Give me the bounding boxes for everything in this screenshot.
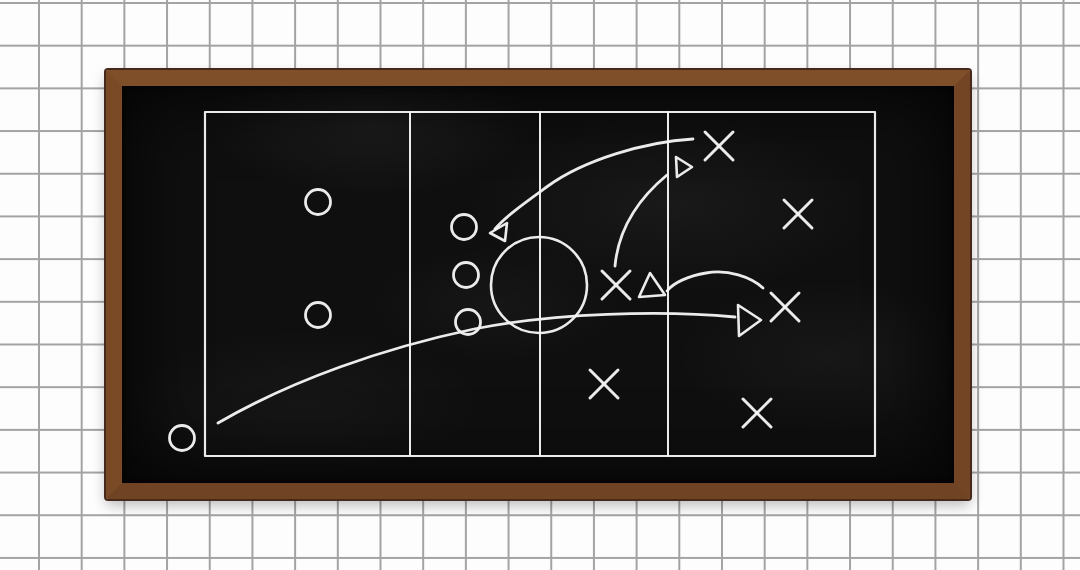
movement-arrow-arc-top-x-to-o-line xyxy=(495,139,693,229)
grid-wall-background xyxy=(0,0,1080,570)
arrow-head-arc-center-x-upfield xyxy=(676,157,692,177)
movement-arrow-arc-center-x-upfield xyxy=(615,175,667,266)
movement-arrow-arc-right-x-to-center-x xyxy=(667,272,763,291)
chalkboard-surface xyxy=(122,86,954,483)
chalkboard xyxy=(106,70,970,499)
o-marker xyxy=(170,426,195,451)
o-marker xyxy=(452,215,477,240)
o-marker xyxy=(306,190,331,215)
o-marker xyxy=(454,263,479,288)
arrow-head-long-sweep-bottom-left-to-right xyxy=(738,305,761,336)
arrow-head-arc-right-x-to-center-x xyxy=(639,273,665,297)
tactics-diagram xyxy=(122,86,954,483)
o-marker xyxy=(306,303,331,328)
